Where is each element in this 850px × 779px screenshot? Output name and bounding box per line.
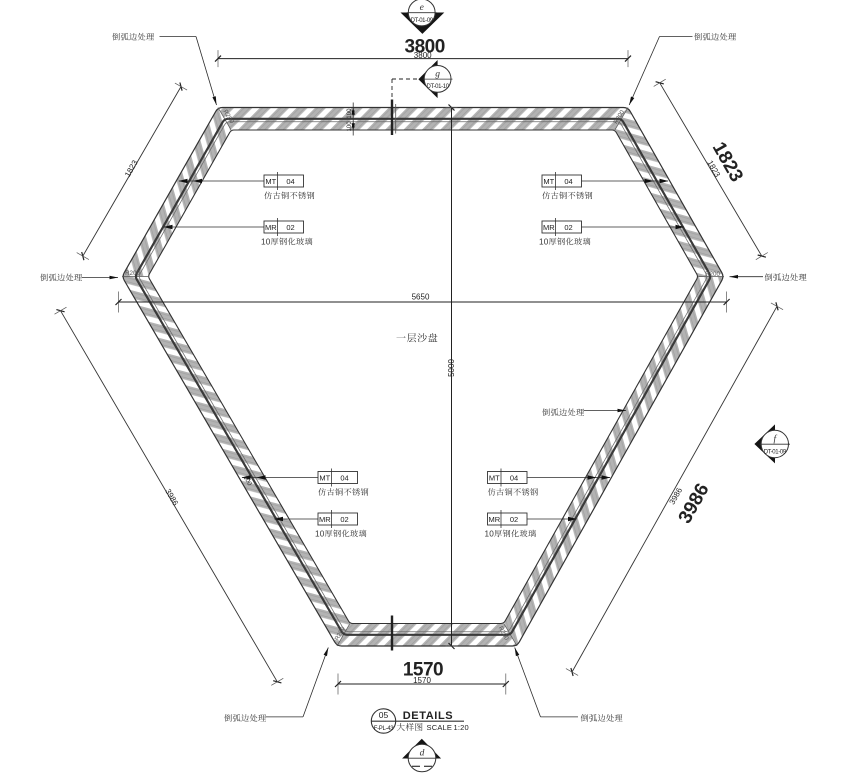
svg-text:5650: 5650 [412,293,430,302]
svg-text:DT-01-09: DT-01-09 [764,449,787,455]
svg-text:e: e [420,3,424,13]
svg-text:MR: MR [265,223,277,232]
svg-text:g: g [435,69,440,79]
svg-text:02: 02 [286,223,294,232]
svg-text:MR: MR [543,223,555,232]
svg-text:1570: 1570 [413,676,431,685]
svg-text:R200: R200 [125,270,140,277]
svg-text:0: 0 [320,530,325,539]
svg-text:02: 02 [564,223,572,232]
svg-text:MR: MR [319,515,331,524]
svg-text:02: 02 [510,515,518,524]
svg-text:02: 02 [340,515,348,524]
svg-text:0: 0 [489,530,494,539]
svg-text:100: 100 [347,108,353,119]
svg-text:MR: MR [488,515,500,524]
svg-text:SCALE: SCALE [427,723,453,732]
svg-text:04: 04 [286,177,294,186]
svg-text:04: 04 [340,474,348,483]
svg-text:DT-01-10: DT-01-10 [426,84,449,90]
svg-text:1:20: 1:20 [454,723,469,732]
svg-text:04: 04 [510,474,518,483]
svg-text:MT: MT [265,177,276,186]
svg-text:100: 100 [347,121,353,132]
svg-text:04: 04 [564,177,572,186]
svg-text:d: d [420,748,425,758]
svg-text:F-PL-43: F-PL-43 [374,726,395,732]
svg-text:0: 0 [266,238,271,247]
svg-text:DETAILS: DETAILS [403,710,453,722]
svg-text:5000: 5000 [447,359,456,377]
svg-text:0: 0 [544,238,549,247]
svg-text:R200: R200 [705,271,720,278]
svg-text:05: 05 [379,710,389,720]
svg-text:3800: 3800 [414,51,432,60]
svg-text:MT: MT [489,474,500,483]
svg-text:DT-01-09: DT-01-09 [411,18,434,24]
svg-text:MT: MT [543,177,554,186]
svg-text:MT: MT [319,474,330,483]
